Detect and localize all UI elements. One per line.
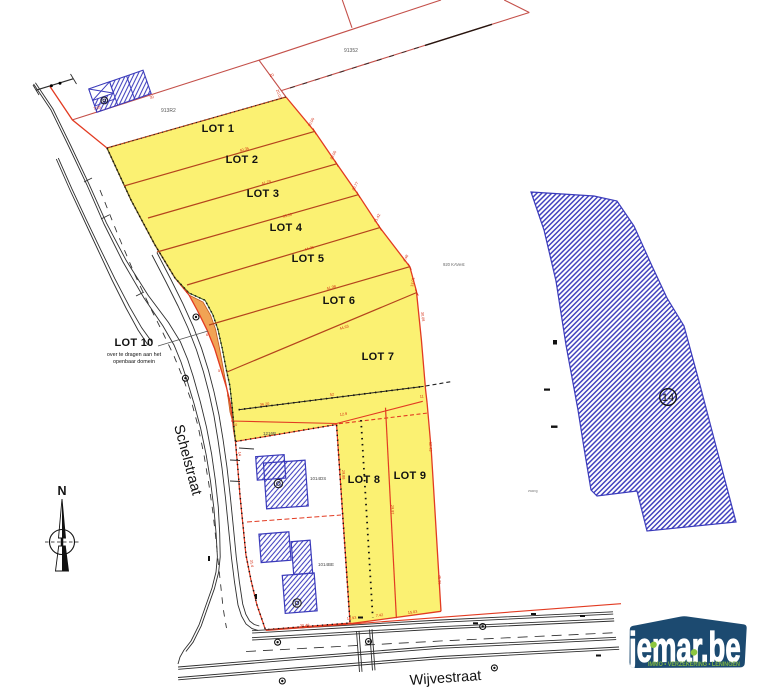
svg-text:1014BE: 1014BE [318, 562, 334, 567]
svg-text:45.96: 45.96 [437, 575, 441, 585]
svg-text:1014DS: 1014DS [310, 476, 326, 481]
svg-text:LOT 1: LOT 1 [202, 123, 235, 135]
svg-text:openbaar domein: openbaar domein [113, 359, 155, 365]
svg-text:9: 9 [227, 394, 229, 398]
svg-text:zwwvg: zwwvg [528, 489, 538, 493]
svg-text:IMMO • VERZEKERING • LENINGEN: IMMO • VERZEKERING • LENINGEN [648, 661, 740, 668]
svg-text:52: 52 [330, 393, 335, 397]
svg-text:LOT 3: LOT 3 [247, 188, 280, 200]
svg-text:LOT 9: LOT 9 [394, 470, 427, 482]
svg-text:LOT 8: LOT 8 [348, 474, 381, 486]
svg-text:11: 11 [419, 394, 424, 399]
svg-text:LOT 4: LOT 4 [270, 222, 303, 234]
svg-text:52.43: 52.43 [428, 442, 432, 452]
svg-text:14: 14 [237, 451, 242, 456]
svg-text:N: N [57, 484, 66, 498]
svg-text:91352: 91352 [344, 48, 358, 54]
svg-text:over te dragen aan het: over te dragen aan het [107, 352, 162, 358]
svg-text:29.97: 29.97 [390, 505, 394, 515]
svg-text:LOT 2: LOT 2 [226, 154, 259, 166]
svg-text:LOT 5: LOT 5 [292, 253, 325, 265]
svg-text:LOT 7: LOT 7 [362, 351, 395, 363]
svg-text:29.88: 29.88 [341, 470, 345, 480]
svg-text:LOT 10: LOT 10 [114, 337, 153, 349]
svg-text:920 KAVest: 920 KAVest [443, 262, 465, 267]
svg-text:14: 14 [662, 392, 674, 404]
svg-text:30.49: 30.49 [300, 623, 310, 628]
svg-text:8: 8 [186, 290, 188, 294]
svg-text:913R2: 913R2 [161, 108, 176, 114]
svg-text:5: 5 [218, 369, 220, 373]
svg-text:1216B: 1216B [263, 431, 276, 436]
svg-text:10: 10 [233, 423, 237, 427]
svg-text:LOT 6: LOT 6 [323, 295, 356, 307]
svg-text:6: 6 [206, 333, 208, 337]
